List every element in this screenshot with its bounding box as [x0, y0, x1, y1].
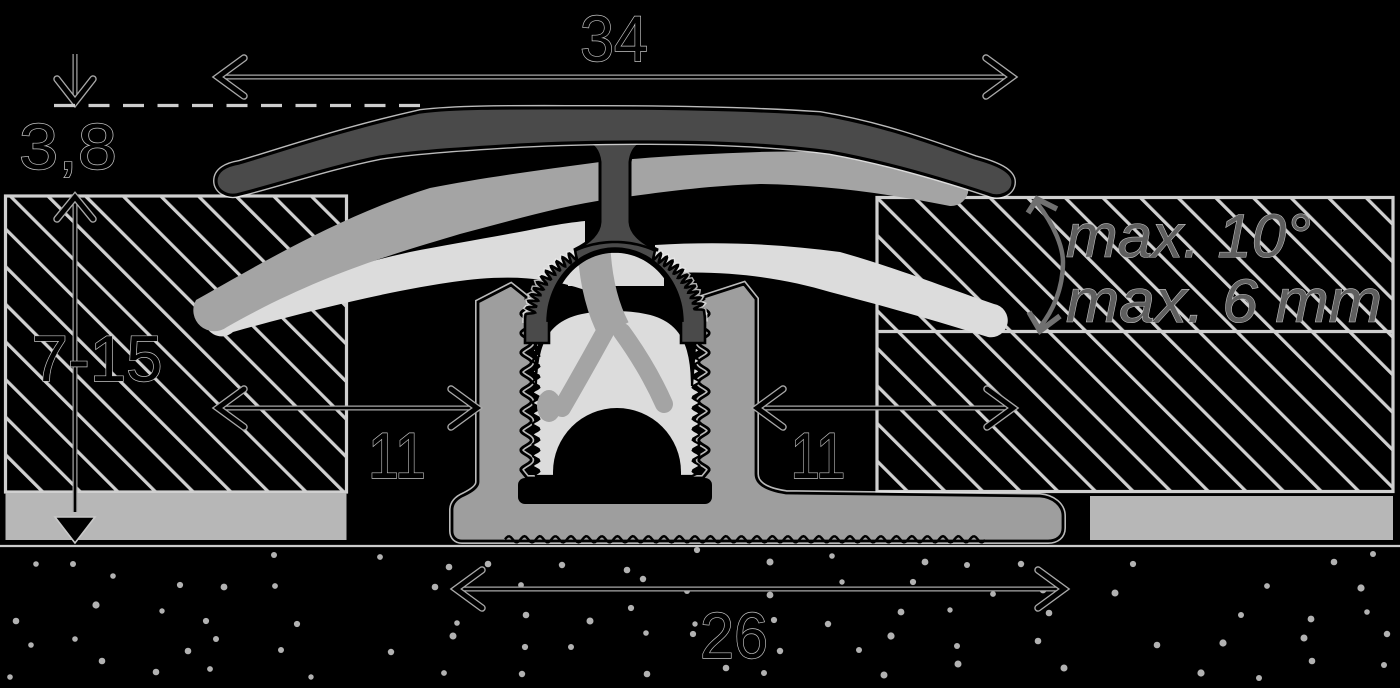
svg-text:max. 6 mm: max. 6 mm — [1066, 267, 1382, 335]
svg-text:max. 10°: max. 10° — [1066, 202, 1311, 270]
svg-text:34: 34 — [580, 2, 648, 75]
svg-text:3,8: 3,8 — [19, 110, 117, 183]
svg-text:11: 11 — [791, 419, 846, 492]
svg-text:7-15: 7-15 — [32, 322, 163, 395]
svg-text:26: 26 — [700, 599, 768, 672]
svg-text:11: 11 — [368, 419, 426, 492]
